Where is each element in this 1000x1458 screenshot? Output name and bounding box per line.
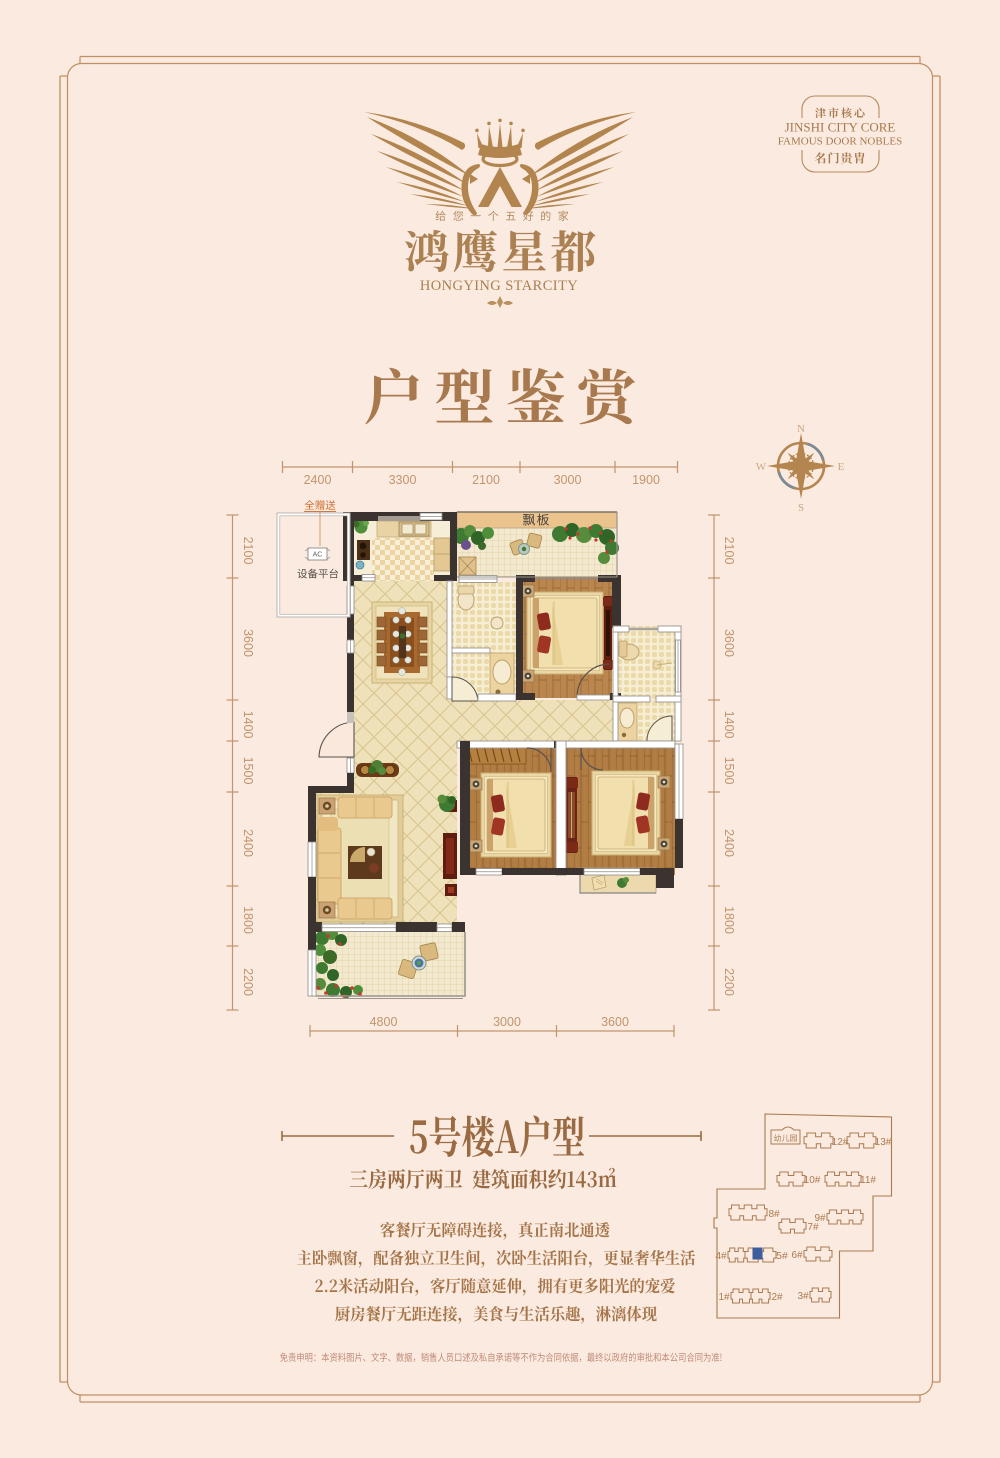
svg-text:W: W <box>756 461 767 473</box>
svg-text:2400: 2400 <box>304 473 332 487</box>
svg-text:2200: 2200 <box>241 968 255 996</box>
svg-text:S: S <box>798 502 804 514</box>
svg-text:4#: 4# <box>715 1251 727 1262</box>
svg-text:3600: 3600 <box>722 629 736 657</box>
svg-text:6#: 6# <box>791 1250 803 1261</box>
svg-text:1400: 1400 <box>722 711 736 739</box>
svg-text:5#: 5# <box>776 1250 788 1262</box>
svg-text:2400: 2400 <box>241 829 255 857</box>
svg-text:3600: 3600 <box>241 629 255 657</box>
svg-text:2200: 2200 <box>722 968 736 996</box>
svg-text:12#: 12# <box>832 1137 849 1148</box>
svg-text:1900: 1900 <box>632 473 660 487</box>
svg-text:FAMOUS DOOR NOBLES: FAMOUS DOOR NOBLES <box>778 136 902 148</box>
svg-text:2100: 2100 <box>241 537 255 565</box>
svg-text:3#: 3# <box>797 1291 809 1302</box>
svg-text:2100: 2100 <box>472 473 500 487</box>
svg-text:N: N <box>797 423 805 435</box>
svg-text:3000: 3000 <box>554 473 582 487</box>
svg-text:3300: 3300 <box>389 473 417 487</box>
svg-text:11#: 11# <box>860 1175 876 1186</box>
svg-text:AC: AC <box>313 552 323 559</box>
svg-text:8#: 8# <box>768 1209 780 1220</box>
svg-text:1500: 1500 <box>722 757 736 785</box>
svg-text:1500: 1500 <box>241 757 255 785</box>
svg-text:3000: 3000 <box>493 1015 521 1029</box>
svg-text:10#: 10# <box>804 1175 821 1186</box>
svg-text:1800: 1800 <box>722 906 736 934</box>
svg-text:9#: 9# <box>814 1213 826 1224</box>
svg-text:2400: 2400 <box>722 829 736 857</box>
svg-text:13#: 13# <box>875 1137 892 1148</box>
svg-text:2100: 2100 <box>722 537 736 565</box>
svg-text:HONGYING STARCITY: HONGYING STARCITY <box>420 278 578 294</box>
svg-text:4800: 4800 <box>370 1015 398 1029</box>
svg-text:2#: 2# <box>771 1292 783 1303</box>
svg-text:1800: 1800 <box>241 906 255 934</box>
svg-text:1#: 1# <box>718 1292 730 1303</box>
svg-text:JINSHI CITY CORE: JINSHI CITY CORE <box>785 120 896 135</box>
svg-text:1400: 1400 <box>241 711 255 739</box>
svg-text:E: E <box>838 461 845 473</box>
svg-text:3600: 3600 <box>601 1015 629 1029</box>
